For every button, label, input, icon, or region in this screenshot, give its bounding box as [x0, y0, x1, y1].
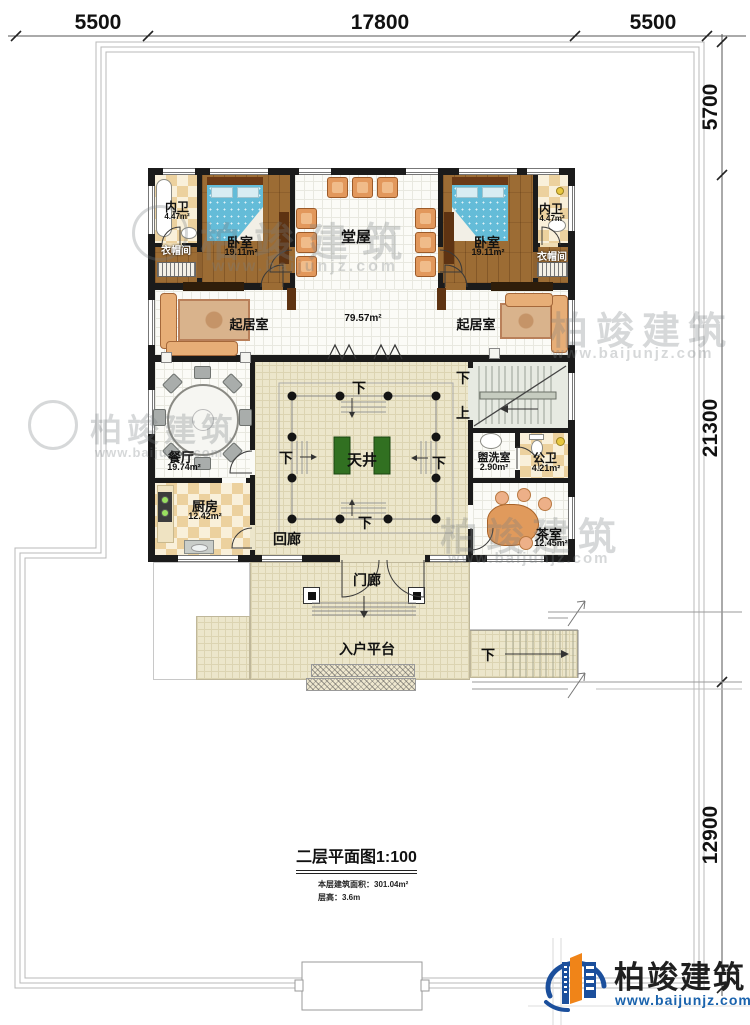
- door-gap-dining: [250, 450, 255, 475]
- hall-chair: [296, 208, 317, 229]
- door-gap-tearoom: [468, 505, 473, 529]
- platform-entry-step-2: [306, 678, 416, 691]
- window-top-4: [406, 168, 438, 175]
- room-area-bedroom-left: 19.11m²: [224, 247, 257, 257]
- window-bottom-right: [430, 555, 466, 562]
- room-area-bathroom-right: 4.47m²: [539, 214, 564, 223]
- hall-chair: [296, 232, 317, 253]
- dim-top-left: 5500: [75, 11, 122, 35]
- room-label-platform: 入户平台: [339, 639, 395, 659]
- tv-cabinet-right: [491, 282, 553, 291]
- door-gap-dining-kitchen: [222, 478, 246, 483]
- dining-chair: [153, 409, 166, 426]
- stair-up-label-interior: 上: [456, 403, 470, 423]
- dim-right-middle: 21300: [699, 383, 723, 473]
- stair-down-label-courtyard-left: 下: [279, 448, 293, 468]
- dim-right-upper: 5700: [699, 62, 723, 152]
- stair-down-label-courtyard-bottom: 下: [358, 513, 372, 533]
- washroom-basin: [480, 433, 502, 449]
- dining-chair: [239, 409, 252, 426]
- watermark-logo-circle: [28, 400, 78, 450]
- cloak-wardrobe-right: [537, 262, 568, 277]
- window-bottom-left: [262, 555, 302, 562]
- hall-chair: [327, 177, 348, 198]
- tea-stool: [538, 497, 552, 511]
- room-area-toilet: 4.21m²: [532, 463, 561, 473]
- company-logo-site: www.baijunjz.com: [615, 992, 750, 1008]
- interior-stair-floor: [473, 362, 568, 428]
- room-label-porch: 门廊: [353, 570, 381, 590]
- platform-left-extension: [196, 616, 250, 680]
- door-gap-porch: [340, 555, 425, 562]
- hall-post-left: [287, 288, 296, 310]
- side-table: [489, 348, 500, 359]
- toilet-accessory: [556, 437, 565, 446]
- platform-entry-step-1: [311, 664, 415, 677]
- window-right-tearoom: [568, 497, 575, 539]
- window-top-3: [299, 168, 331, 175]
- side-table: [161, 352, 172, 363]
- door-gap-hall-bedroom-left: [290, 247, 295, 273]
- room-label-cloak-left: 衣帽间: [161, 242, 191, 257]
- kitchen-stove: [158, 492, 172, 522]
- room-label-corridor: 回廊: [273, 529, 301, 549]
- window-left-bath: [148, 186, 155, 234]
- sofa-left-horizontal: [166, 341, 238, 356]
- room-label-living-left: 起居室: [229, 314, 268, 333]
- wardrobe-left: [279, 212, 289, 264]
- room-area-washroom: 2.90m²: [480, 462, 509, 472]
- door-gap-bedroom-left: [262, 283, 283, 290]
- door-gap-hall-bedroom-right: [438, 247, 443, 273]
- window-right-stair: [568, 373, 575, 420]
- watermark-text: 柏竣建筑: [550, 300, 734, 355]
- hall-chair: [415, 208, 436, 229]
- sofa-right-horizontal: [505, 293, 553, 307]
- hall-post-right: [437, 288, 446, 310]
- room-area-bedroom-right: 19.11m²: [471, 247, 504, 257]
- side-table: [240, 352, 251, 363]
- hall-chair: [377, 177, 398, 198]
- company-logo-icon: [540, 946, 610, 1014]
- plan-area-note: 本层建筑面积：301.04m²: [318, 879, 408, 890]
- door-gap-bedroom-right: [445, 283, 466, 290]
- hall-chair: [296, 256, 317, 277]
- dining-table: [167, 384, 239, 456]
- window-bottom-tearoom: [487, 555, 544, 562]
- dim-right-lower: 12900: [699, 790, 723, 880]
- porch-column-left: [303, 587, 320, 604]
- room-label-cloak-right: 衣帽间: [537, 248, 567, 263]
- hall-chair: [415, 232, 436, 253]
- window-top-5: [459, 168, 517, 175]
- tea-stool: [495, 491, 509, 505]
- window-bottom-kitchen: [178, 555, 238, 562]
- stair-down-label-exterior: 下: [481, 645, 495, 665]
- window-right-living: [568, 300, 575, 345]
- washbasin-left: [181, 227, 197, 239]
- hall-chair: [415, 256, 436, 277]
- room-label-hall: 堂屋: [341, 226, 371, 247]
- window-left-living: [148, 300, 155, 345]
- plan-title: 二层平面图1:100: [296, 843, 417, 874]
- room-area-dining: 19.74m²: [167, 462, 201, 472]
- kitchen-sink: [184, 540, 214, 554]
- stair-down-label-interior: 下: [456, 368, 470, 388]
- window-top-2: [210, 168, 268, 175]
- room-label-living-right: 起居室: [456, 314, 495, 333]
- company-logo-name: 柏竣建筑: [614, 952, 746, 997]
- door-gap-kitchen: [250, 525, 255, 550]
- bath-accessory: [556, 187, 564, 195]
- window-top-6: [527, 168, 559, 175]
- tea-stool: [517, 488, 531, 502]
- plan-floor-height-note: 层高：3.6m: [318, 892, 360, 903]
- room-label-courtyard: 天井: [347, 449, 377, 470]
- porch-column-right: [408, 587, 425, 604]
- door-gap-cloak-left: [197, 252, 202, 278]
- room-area-tearoom: 12.45m²: [534, 538, 568, 548]
- window-top-1: [163, 168, 195, 175]
- company-logo: 柏竣建筑 www.baijunjz.com: [540, 946, 750, 1018]
- hall-chair: [352, 177, 373, 198]
- room-area-kitchen: 12.42m²: [188, 511, 222, 521]
- dim-top-right: 5500: [630, 11, 677, 35]
- tv-cabinet-left: [183, 282, 244, 291]
- door-gap-bath-right: [540, 243, 558, 247]
- sofa-right-vertical: [551, 295, 568, 353]
- rug-right: [500, 303, 552, 339]
- room-area-open: 79.57m²: [344, 313, 381, 324]
- room-area-bathroom-left: 4.47m²: [164, 212, 189, 221]
- watermark-site: www.baijunjz.com: [552, 345, 713, 362]
- door-gap-washroom-toilet: [515, 448, 520, 470]
- dim-top-center: 17800: [351, 11, 409, 35]
- window-right-bath: [568, 186, 575, 231]
- dining-chair: [194, 366, 211, 379]
- stair-down-label-courtyard-right: 下: [432, 453, 446, 473]
- floor-plan-canvas: 5500 17800 5500 5700 21300 12900: [0, 0, 750, 1025]
- tea-stool: [519, 536, 533, 550]
- stair-down-label-courtyard-top: 下: [352, 378, 366, 398]
- wardrobe-right: [444, 212, 454, 264]
- cloak-wardrobe-left: [157, 262, 196, 277]
